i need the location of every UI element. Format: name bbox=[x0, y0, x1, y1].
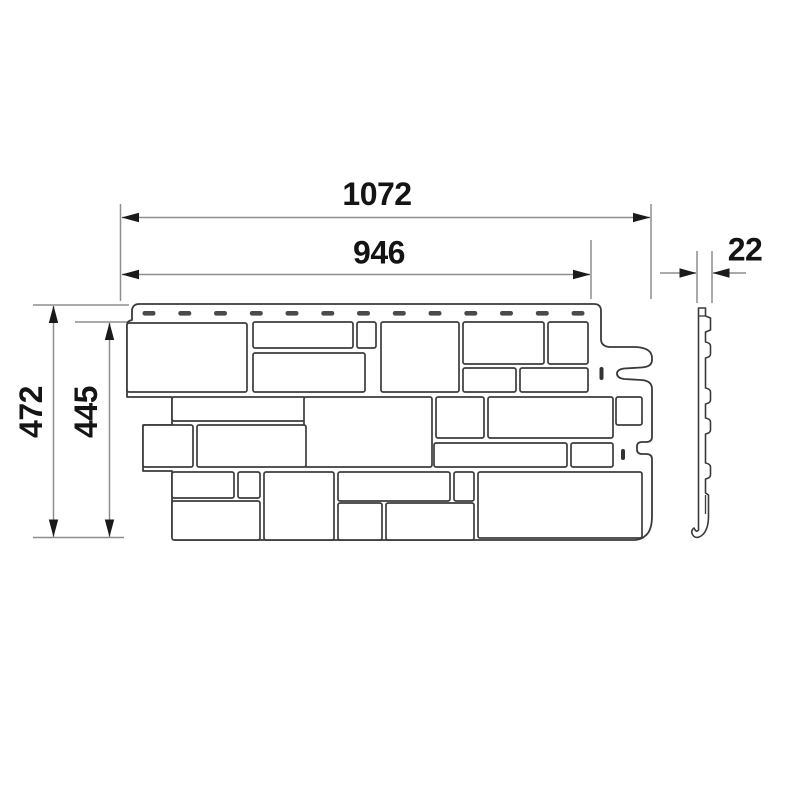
dim-label-exposed-width: 946 bbox=[353, 235, 405, 271]
stone-block bbox=[304, 397, 432, 467]
stone-block bbox=[434, 443, 567, 467]
stone-block bbox=[548, 322, 588, 364]
arrowhead-left bbox=[122, 213, 140, 222]
stone-block bbox=[381, 322, 459, 392]
stone-block bbox=[488, 397, 613, 438]
arrowhead-top bbox=[49, 306, 58, 324]
stone-block bbox=[520, 368, 588, 392]
stone-block bbox=[357, 322, 376, 348]
stone-block bbox=[338, 472, 450, 501]
arrowhead-right bbox=[573, 270, 591, 279]
dim-exposed-height: 445 bbox=[68, 322, 130, 537]
edge-slot-hole bbox=[600, 367, 604, 380]
stone-block bbox=[463, 322, 544, 364]
arrowhead-left bbox=[122, 270, 140, 279]
arrowhead-bottom bbox=[105, 520, 114, 538]
dim-label-overall-height: 472 bbox=[13, 386, 49, 438]
edge-slot-hole bbox=[621, 449, 625, 460]
dim-thickness: 22 bbox=[660, 232, 762, 304]
stone-block bbox=[197, 425, 306, 467]
stone-block bbox=[143, 425, 193, 467]
stone-block bbox=[454, 472, 474, 501]
stone-block bbox=[253, 322, 353, 348]
stone-block bbox=[172, 501, 260, 540]
stone-block bbox=[338, 503, 382, 540]
stone-block bbox=[436, 397, 484, 438]
dim-label-thickness: 22 bbox=[728, 232, 763, 268]
stone-block bbox=[238, 472, 260, 498]
stone-block bbox=[253, 353, 365, 392]
stone-block bbox=[127, 323, 247, 392]
stone-block bbox=[616, 397, 642, 425]
stone-blocks-row-3 bbox=[172, 472, 642, 540]
arrowhead-right bbox=[713, 268, 730, 277]
stone-block bbox=[463, 368, 516, 392]
stone-block bbox=[264, 472, 334, 540]
dimension-drawing: 1072 946 472 445 22 bbox=[0, 0, 800, 800]
dim-label-overall-width: 1072 bbox=[342, 176, 411, 212]
stone-block bbox=[571, 443, 613, 467]
stone-blocks-row-2 bbox=[143, 397, 642, 467]
dim-exposed-width: 946 bbox=[122, 235, 592, 300]
arrowhead-bottom bbox=[49, 520, 58, 538]
arrowhead-top bbox=[105, 323, 114, 341]
dim-label-exposed-height: 445 bbox=[68, 386, 104, 438]
stone-block bbox=[172, 472, 234, 498]
arrowhead-right bbox=[633, 213, 651, 222]
panel-front-view bbox=[127, 304, 652, 540]
arrowhead-left bbox=[680, 268, 697, 277]
stone-block bbox=[172, 397, 306, 421]
stone-block bbox=[386, 503, 474, 540]
stone-block bbox=[478, 472, 642, 538]
side-profile-outline bbox=[692, 308, 711, 537]
panel-side-profile bbox=[692, 308, 711, 537]
